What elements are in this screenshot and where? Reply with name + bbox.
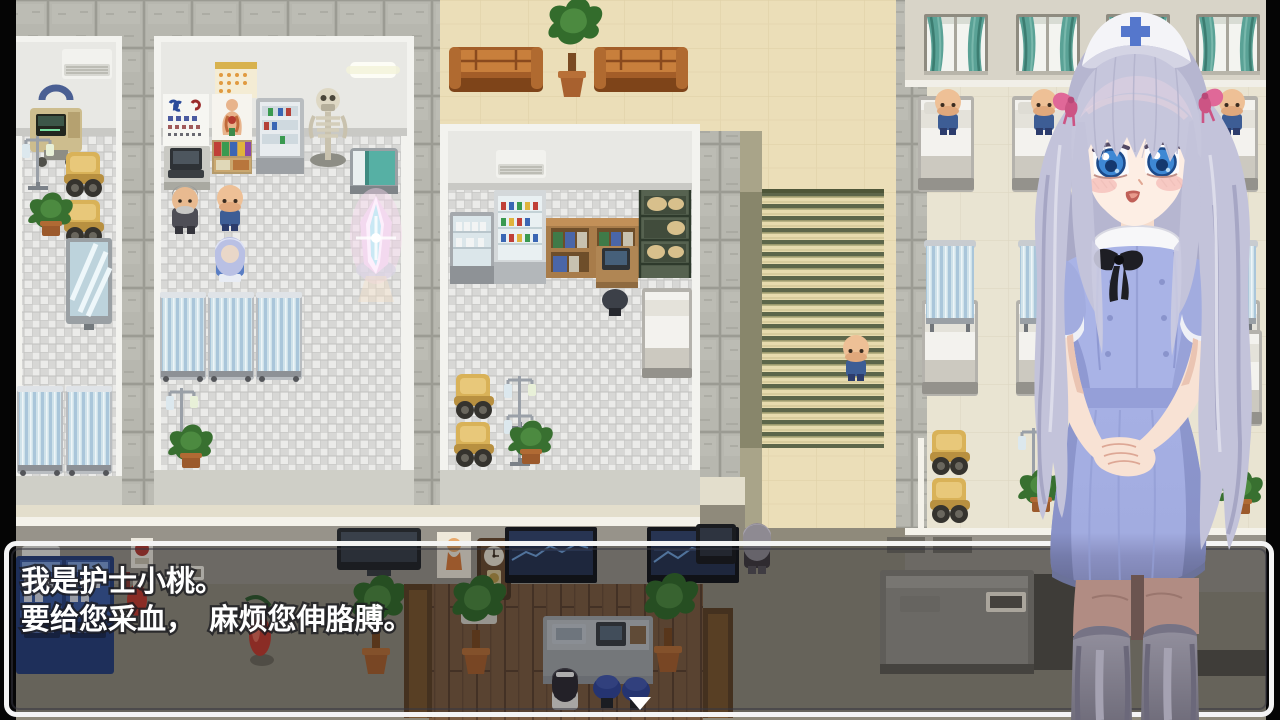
svg-text:要给您采血， 麻烦您伸胳膊。: 要给您采血， 麻烦您伸胳膊。	[21, 602, 413, 636]
svg-text:我是护士小桃。: 我是护士小桃。	[21, 565, 224, 598]
